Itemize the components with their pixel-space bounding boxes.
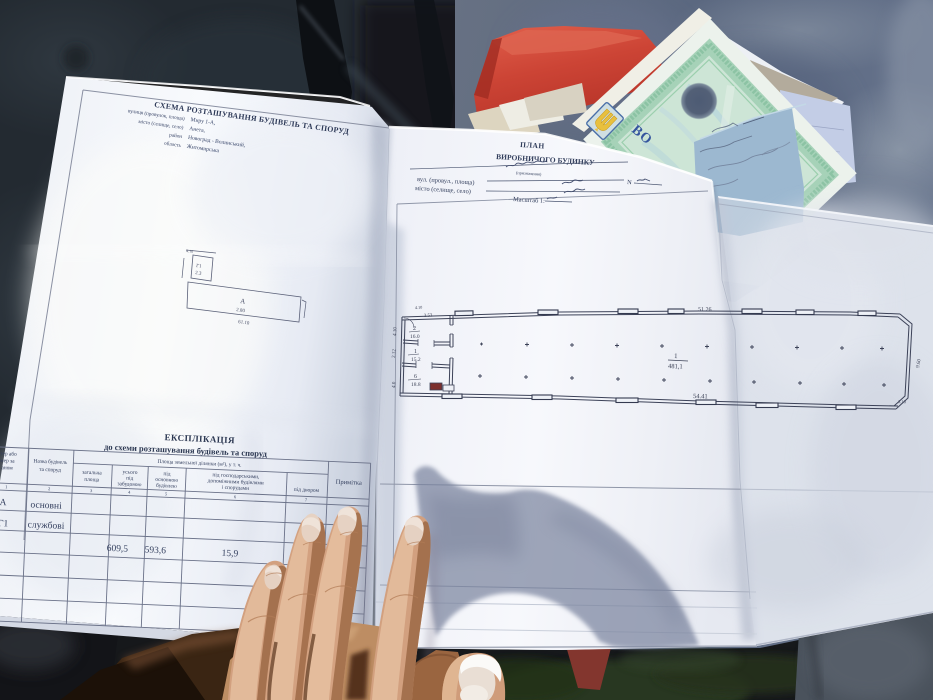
- svg-text:4.10: 4.10: [186, 248, 194, 254]
- svg-text:ітер або: ітер або: [0, 450, 17, 458]
- svg-text:N: N: [627, 179, 632, 186]
- svg-text:Примітка: Примітка: [336, 479, 363, 487]
- svg-text:основні: основні: [30, 500, 62, 511]
- svg-text:51.26: 51.26: [698, 307, 712, 313]
- svg-text:будівлею: будівлею: [156, 482, 177, 490]
- svg-text:609,5: 609,5: [106, 544, 128, 555]
- svg-text:службові: службові: [27, 519, 65, 532]
- svg-text:мер за: мер за: [0, 458, 15, 465]
- svg-text:481,1: 481,1: [668, 363, 683, 371]
- svg-text:54.41: 54.41: [693, 393, 708, 400]
- svg-text:4.0: 4.0: [392, 381, 397, 388]
- svg-text:1: 1: [5, 484, 7, 489]
- svg-text:2.3: 2.3: [195, 271, 202, 277]
- svg-text:,Г1: ,Г1: [0, 519, 9, 530]
- svg-text:18.8: 18.8: [411, 382, 421, 388]
- svg-text:А: А: [0, 498, 7, 508]
- svg-text:2: 2: [413, 326, 416, 332]
- svg-text:15,9: 15,9: [221, 549, 238, 560]
- svg-text:забудовою: забудовою: [117, 480, 141, 488]
- svg-text:4.10: 4.10: [415, 305, 423, 310]
- svg-text:2: 2: [48, 486, 50, 491]
- svg-text:ПЛАН: ПЛАН: [520, 140, 545, 150]
- svg-text:593,6: 593,6: [144, 545, 166, 556]
- svg-text:і спорудами: і спорудами: [222, 485, 250, 492]
- svg-text:3.10: 3.10: [898, 399, 907, 404]
- svg-text:загальна: загальна: [82, 470, 102, 477]
- svg-text:під двором: під двором: [294, 487, 320, 494]
- svg-text:4.10: 4.10: [393, 327, 399, 337]
- svg-text:15.2: 15.2: [411, 357, 421, 363]
- svg-text:16.0: 16.0: [410, 334, 420, 340]
- svg-text:та споруд: та споруд: [39, 467, 61, 474]
- svg-text:аном: аном: [1, 465, 13, 472]
- svg-text:площа: площа: [84, 477, 100, 484]
- svg-text:2.12: 2.12: [392, 349, 398, 359]
- svg-text:3.53: 3.53: [424, 314, 433, 319]
